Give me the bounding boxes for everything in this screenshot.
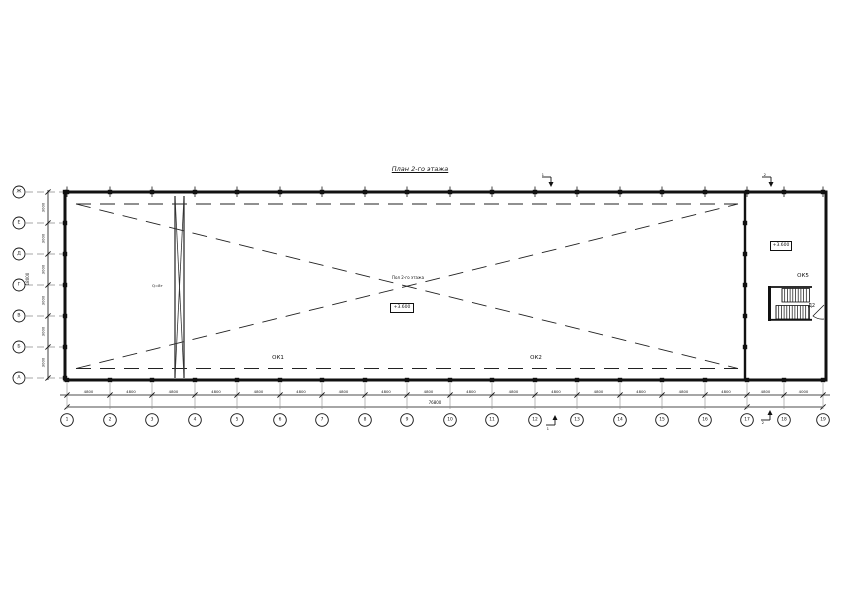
column-mark [63,252,67,256]
column-mark [65,378,69,382]
bay-dimension: 4800 [679,389,689,394]
column-mark [63,283,67,287]
axis-bubble-label: 14 [617,417,623,423]
bay-dimension: 4800 [594,389,604,394]
column-mark [821,190,825,194]
section-mark-arrow-icon [769,182,774,187]
column-mark [575,190,579,194]
axis-bubble-label: 6 [279,417,282,423]
axis-bubble-label: 8 [364,417,367,423]
column-mark [405,378,409,382]
column-mark [743,221,747,225]
bay-dimension: 3000 [41,326,46,336]
axis-bubble-label: 2 [109,417,112,423]
drawing-title: План 2-го этажа [360,166,480,173]
column-mark [278,378,282,382]
column-mark [575,378,579,382]
column-mark [743,283,747,287]
drawing-sheet: Ж3000Е3000Д3000Г3000В3000Б3000А148002480… [0,0,842,595]
column-mark [703,190,707,194]
column-mark [533,378,537,382]
axis-bubble-label: 7 [321,417,324,423]
column-mark [660,190,664,194]
axis-bubble-label: Б [17,344,20,350]
vertical-brace [175,196,184,378]
column-mark [63,314,67,318]
bay-dimension: 4800 [211,389,221,394]
column-mark [363,378,367,382]
bay-dimension: 3000 [41,295,46,305]
column-mark [65,190,69,194]
axis-bubble-label: 19 [820,417,826,423]
axis-bubble-label: 4 [194,417,197,423]
bay-dimension: 4000 [799,389,809,394]
axis-bubble-label: 17 [744,417,750,423]
column-mark [235,378,239,382]
column-mark [745,378,749,382]
axis-bubble-label: Ж [17,189,22,195]
section-mark-label: 1 [542,172,545,177]
section-mark-label: 1 [547,426,550,431]
door-mark-d2: Д2 [808,304,824,309]
axis-bubble-label: 13 [574,417,580,423]
center-note: Пол 2-го этажа [383,276,433,280]
bay-dimension: 4800 [466,389,476,394]
window-mark-ok2: ОК2 [521,356,551,362]
column-mark [821,378,825,382]
section-mark-label: 2 [764,172,767,177]
column-mark [278,190,282,194]
column-mark [743,345,747,349]
section-mark-arrow-icon [768,410,773,415]
stair-flight-lower [776,306,810,320]
column-mark [320,378,324,382]
section-mark-label: 2 [762,420,765,425]
axis-bubble-label: 16 [702,417,708,423]
window-mark-ok1: ОК1 [263,356,293,362]
column-mark [533,190,537,194]
column-mark [448,378,452,382]
bay-dimension: 3000 [41,233,46,243]
bay-dimension: 4800 [169,389,179,394]
bay-dimension: 4800 [339,389,349,394]
axis-bubble-label: Г [18,282,21,288]
axis-bubble-label: Е [18,220,21,226]
bay-dimension: 4800 [509,389,519,394]
axis-bubble-label: 3 [151,417,154,423]
bay-dimension: 3000 [41,202,46,212]
column-mark [108,190,112,194]
axis-bubble-label: 18 [781,417,787,423]
column-mark [743,314,747,318]
column-mark [405,190,409,194]
center-elevation-box: +3.600 [390,303,414,313]
bay-dimension: 3000 [41,357,46,367]
bay-dimension: 4800 [636,389,646,394]
bay-dimension: 4800 [254,389,264,394]
bay-dimension: 4800 [126,389,136,394]
axis-bubble-label: 9 [406,417,409,423]
axis-bubble-label: Д [17,251,21,257]
grid-and-dimensions: Ж3000Е3000Д3000Г3000В3000Б3000А148002480… [13,186,830,426]
column-mark [363,190,367,194]
column-mark [745,190,749,194]
section-mark-arrow-icon [553,415,558,420]
column-mark [108,378,112,382]
column-mark [703,378,707,382]
plan-drawing: Ж3000Е3000Д3000Г3000В3000Б3000А148002480… [0,0,842,595]
bay-dimension: 4800 [381,389,391,394]
axis-bubble-label: 1 [66,417,69,423]
column-mark [193,378,197,382]
axis-bubble-label: 5 [236,417,239,423]
overall-dim-bottom: 76800 [412,401,458,405]
column-mark [150,190,154,194]
window-mark-ok5: ОК5 [790,274,816,280]
column-mark [193,190,197,194]
bay-dimension: 4800 [721,389,731,394]
column-mark [63,345,67,349]
axis-bubble-label: 11 [489,417,495,423]
axis-bubble-label: 15 [659,417,665,423]
stair-treads [776,289,808,320]
column-mark [660,378,664,382]
bay-dimension: 4800 [551,389,561,394]
stair-elevation-box: +3.600 [770,241,792,251]
bay-dimension: 4800 [424,389,434,394]
column-mark [448,190,452,194]
axis-bubble-label: 10 [447,417,453,423]
column-mark [320,190,324,194]
column-mark [150,378,154,382]
column-mark [618,190,622,194]
brace-label: Q=8т [152,284,172,288]
axis-bubble-label: 12 [532,417,538,423]
axis-bubble-label: В [17,313,20,319]
section-mark-arrow-icon [549,182,554,187]
bay-dimension: 3000 [41,264,46,274]
column-mark [490,190,494,194]
column-mark [782,378,786,382]
overall-dim-left: 18000 [26,259,34,299]
stair-left-wall [768,286,771,321]
column-mark [782,190,786,194]
bay-dimension: 4800 [84,389,94,394]
column-mark [743,252,747,256]
column-mark [63,221,67,225]
column-mark [235,190,239,194]
bay-dimension: 4800 [761,389,771,394]
column-mark [618,378,622,382]
column-mark [490,378,494,382]
bay-dimension: 4800 [296,389,306,394]
